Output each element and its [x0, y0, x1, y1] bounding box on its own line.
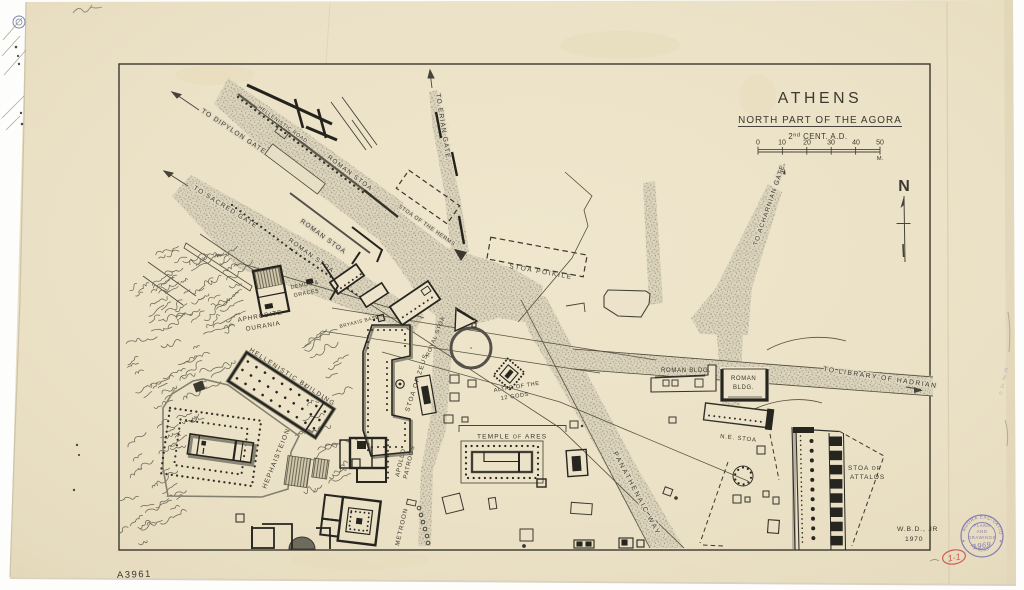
svg-text:10: 10	[778, 140, 786, 147]
svg-text:STOA OF: STOA OF	[848, 465, 881, 472]
svg-text:30: 30	[827, 140, 835, 147]
svg-text:N: N	[898, 178, 910, 195]
svg-text:1970: 1970	[905, 536, 923, 543]
svg-text:PLANS: PLANS	[974, 523, 991, 528]
svg-text:DRAWINGS: DRAWINGS	[968, 535, 996, 540]
svg-text:50: 50	[876, 140, 884, 147]
svg-text:M.: M.	[877, 156, 884, 162]
svg-text:A3961: A3961	[117, 569, 152, 581]
svg-text:20: 20	[803, 140, 811, 147]
svg-text:ATTALOS: ATTALOS	[850, 474, 885, 481]
svg-text:0: 0	[756, 140, 760, 147]
svg-text:40: 40	[852, 140, 860, 147]
svg-text:TEMPLE OF ARES: TEMPLE OF ARES	[477, 434, 547, 441]
svg-text:AND: AND	[977, 529, 988, 534]
svg-text:NORTH PART OF THE AGORA: NORTH PART OF THE AGORA	[738, 115, 902, 126]
svg-text:ATHENS: ATHENS	[778, 90, 863, 107]
svg-text:ROMAN: ROMAN	[731, 376, 756, 382]
svg-text:ROMAN BLDG.: ROMAN BLDG.	[661, 368, 711, 374]
svg-text:BLDG.: BLDG.	[733, 385, 754, 391]
svg-text:W.B.D., JR: W.B.D., JR	[897, 526, 938, 533]
